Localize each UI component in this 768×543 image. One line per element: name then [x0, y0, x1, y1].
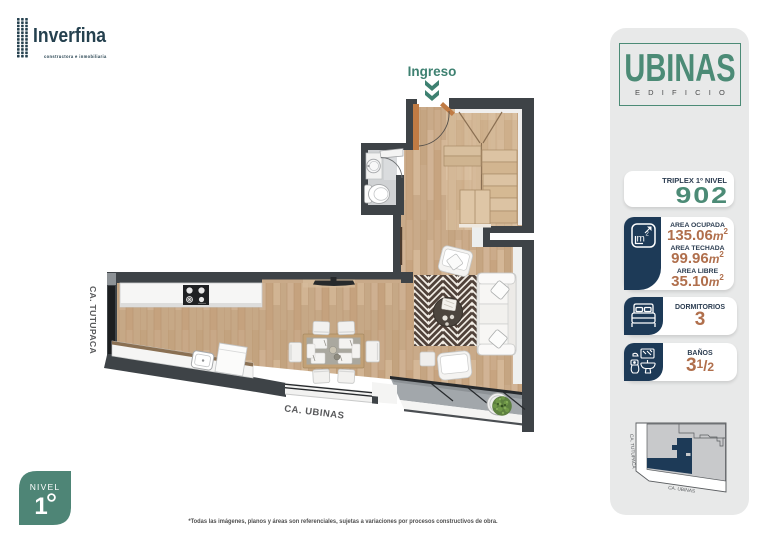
svg-text:CA. UBINAS: CA. UBINAS — [284, 403, 345, 421]
svg-text:NIVEL: NIVEL — [30, 482, 61, 492]
svg-text:1: 1 — [34, 493, 47, 520]
svg-text:CA. TUTUPACA: CA. TUTUPACA — [628, 434, 636, 470]
svg-text:CA. TUTUPACA: CA. TUTUPACA — [88, 286, 98, 355]
svg-text:Ingreso: Ingreso — [408, 64, 457, 79]
